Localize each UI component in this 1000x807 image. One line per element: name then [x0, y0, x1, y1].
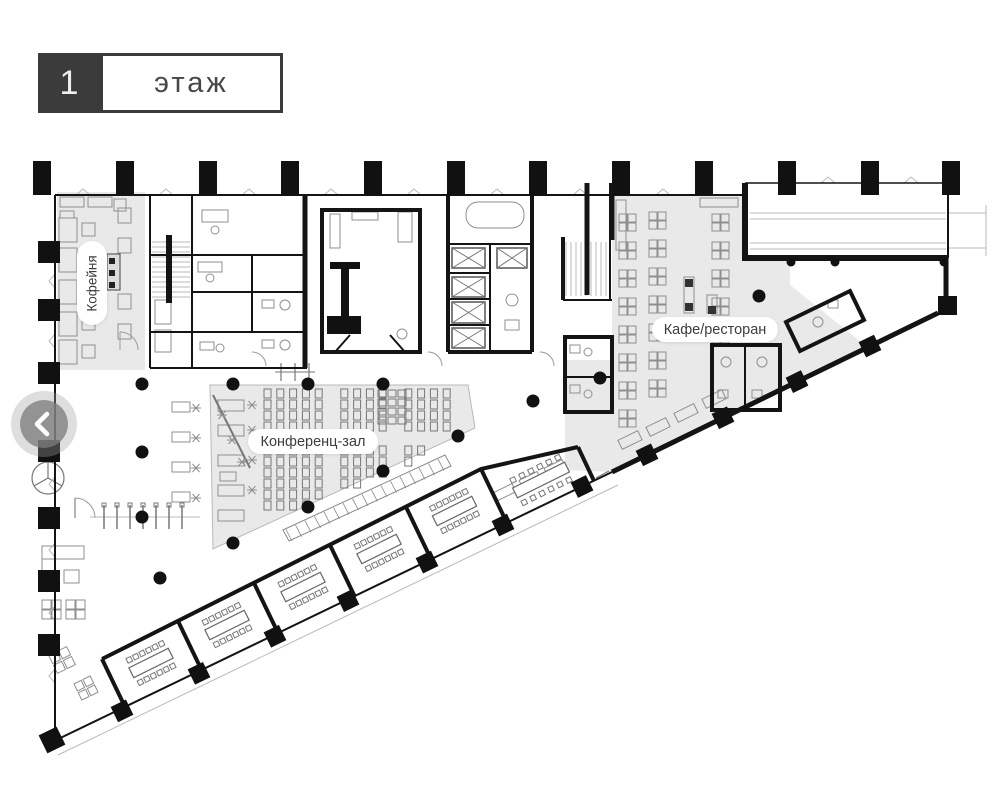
floor-number-badge: 1	[38, 53, 100, 113]
zone-label-cafe: Кафе/ресторан	[652, 317, 778, 342]
zone-label-coffee: Кофейня	[77, 241, 107, 325]
walls-layer	[52, 183, 948, 755]
zone-label-conference: Конференц-зал	[248, 429, 378, 454]
floor-plan-drawing	[0, 0, 1000, 807]
previous-floor-button[interactable]	[20, 400, 68, 448]
floor-plan-page: 1 этаж Кофейня Кафе/ресторан Конференц-з…	[0, 0, 1000, 807]
chevron-left-icon	[20, 400, 68, 448]
zone-label-coffee-text: Кофейня	[85, 255, 100, 311]
floor-name-label: этаж	[100, 53, 283, 113]
